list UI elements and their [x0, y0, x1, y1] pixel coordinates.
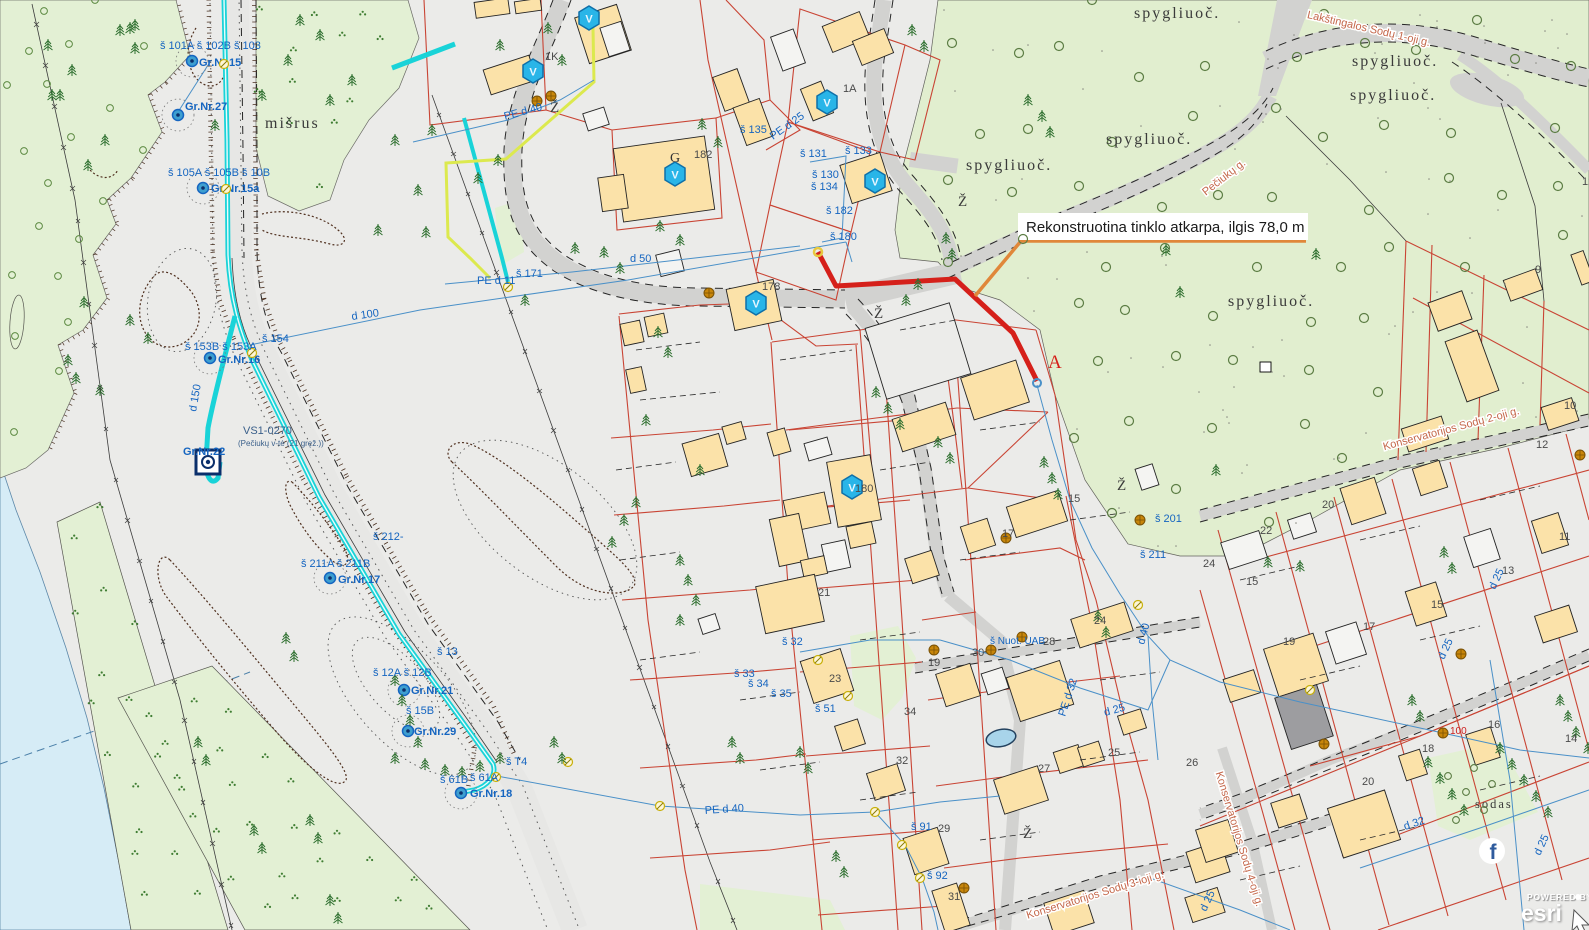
svg-text:š 61B: š 61B — [440, 774, 468, 786]
svg-text:V: V — [529, 67, 537, 79]
svg-text:15: 15 — [1068, 493, 1080, 505]
svg-text:12: 12 — [1536, 439, 1548, 451]
svg-text:178: 178 — [762, 281, 780, 293]
svg-text:15: 15 — [1246, 576, 1258, 588]
svg-text:24: 24 — [1203, 558, 1215, 570]
svg-text:27: 27 — [1038, 763, 1050, 775]
svg-text:(Pečiukų v-tė (21 gręž.)): (Pečiukų v-tė (21 gręž.)) — [238, 439, 324, 448]
svg-text:š 103: š 103 — [234, 40, 261, 52]
svg-text:š 91: š 91 — [911, 821, 932, 833]
svg-text:š 105A š 105B š 10B: š 105A š 105B š 10B — [168, 167, 270, 179]
svg-text:22: 22 — [1260, 525, 1272, 537]
svg-text:12: 12 — [1582, 176, 1589, 188]
svg-text:Rekonstruotina tinklo atkarpa,: Rekonstruotina tinklo atkarpa, ilgis 78,… — [1026, 219, 1304, 236]
svg-text:š 130: š 130 — [812, 169, 839, 181]
svg-text:Gr.Nr.18: Gr.Nr.18 — [470, 788, 512, 800]
svg-text:VS1-0270: VS1-0270 — [243, 425, 292, 437]
svg-text:32: 32 — [896, 755, 908, 767]
svg-text:š 51: š 51 — [815, 703, 836, 715]
svg-text:Gr.Nr.15a: Gr.Nr.15a — [211, 183, 260, 195]
svg-text:d 50: d 50 — [630, 253, 651, 265]
svg-text:š 153B š 153A: š 153B š 153A — [185, 341, 257, 353]
svg-text:Ž: Ž — [550, 99, 561, 116]
svg-text:25: 25 — [1108, 747, 1120, 759]
svg-text:Gr.Nr.29: Gr.Nr.29 — [414, 726, 456, 738]
svg-text:š 201: š 201 — [1155, 513, 1182, 525]
svg-text:š 61A: š 61A — [470, 772, 499, 784]
svg-text:20: 20 — [1362, 776, 1374, 788]
svg-text:17: 17 — [1363, 621, 1375, 633]
svg-text:š 32: š 32 — [782, 636, 803, 648]
svg-text:13: 13 — [1502, 565, 1514, 577]
svg-text:š 211: š 211 — [1140, 549, 1166, 561]
svg-text:31: 31 — [948, 891, 960, 903]
svg-text:V: V — [752, 299, 760, 311]
svg-text:Ž: Ž — [958, 193, 969, 210]
svg-text:V: V — [871, 177, 879, 189]
svg-text:19: 19 — [1283, 636, 1295, 648]
svg-text:Ž: Ž — [874, 305, 885, 322]
svg-text:24: 24 — [1094, 615, 1106, 627]
svg-text:š 12A š 12B: š 12A š 12B — [373, 667, 432, 679]
svg-text:Ž: Ž — [1117, 477, 1128, 494]
svg-text:spygliuoč.: spygliuoč. — [1134, 5, 1220, 22]
svg-text:V: V — [671, 170, 679, 182]
svg-text:15: 15 — [1431, 599, 1443, 611]
svg-text:34: 34 — [904, 706, 916, 718]
svg-text:š 133: š 133 — [845, 145, 872, 157]
svg-text:š 101A š 102B: š 101A š 102B — [160, 40, 231, 52]
svg-text:esri: esri — [1521, 900, 1562, 926]
svg-text:14: 14 — [1565, 733, 1577, 745]
svg-text:28: 28 — [1043, 636, 1055, 648]
svg-text:Gr.Nr.22: Gr.Nr.22 — [183, 446, 225, 458]
svg-text:18: 18 — [1422, 743, 1434, 755]
svg-text:16: 16 — [1488, 719, 1500, 731]
svg-text:10: 10 — [1564, 400, 1576, 412]
svg-text:Gr.Nr.17: Gr.Nr.17 — [338, 574, 380, 586]
svg-text:17: 17 — [1002, 528, 1014, 540]
svg-text:23: 23 — [829, 673, 841, 685]
svg-text:š 15B: š 15B — [406, 705, 434, 717]
svg-text:180: 180 — [855, 483, 873, 495]
svg-text:1A: 1A — [843, 83, 857, 95]
svg-text:20: 20 — [1322, 499, 1334, 511]
svg-text:š Nuot. UAB: š Nuot. UAB — [990, 636, 1045, 647]
svg-text:spygliuoč.: spygliuoč. — [1352, 53, 1438, 70]
svg-text:š 131: š 131 — [800, 148, 827, 160]
svg-text:26: 26 — [1186, 757, 1198, 769]
svg-text:š 135: š 135 — [740, 124, 767, 136]
svg-text:š T4: š T4 — [506, 756, 527, 768]
svg-text:29: 29 — [938, 823, 950, 835]
svg-text:š 13: š 13 — [437, 646, 458, 658]
svg-text:21: 21 — [818, 587, 830, 599]
svg-text:1K: 1K — [545, 51, 559, 63]
svg-text:G: G — [670, 151, 680, 166]
svg-text:š 134: š 134 — [811, 181, 838, 193]
svg-text:š 34: š 34 — [748, 678, 769, 690]
svg-text:100: 100 — [1450, 726, 1467, 737]
svg-text:9: 9 — [1535, 264, 1541, 276]
svg-text:Ž: Ž — [1023, 825, 1034, 842]
svg-text:š 211A š 211B: š 211A š 211B — [301, 558, 370, 570]
svg-text:A: A — [1048, 352, 1062, 373]
svg-text:š 182: š 182 — [826, 205, 853, 217]
svg-text:š 171: š 171 — [516, 268, 543, 280]
svg-text:š 154: š 154 — [262, 333, 289, 345]
svg-text:V: V — [585, 14, 593, 26]
svg-text:Gr.Nr.27: Gr.Nr.27 — [185, 101, 227, 113]
svg-text:30: 30 — [972, 647, 984, 659]
svg-text:11: 11 — [1559, 531, 1570, 543]
svg-text:spygliuoč.: spygliuoč. — [1228, 293, 1314, 310]
svg-text:V: V — [823, 98, 831, 110]
svg-text:PE d 11: PE d 11 — [477, 275, 515, 287]
svg-text:spygliuoč.: spygliuoč. — [1106, 131, 1192, 148]
svg-text:š 35: š 35 — [771, 688, 792, 700]
svg-text:spygliuoč.: spygliuoč. — [1350, 87, 1436, 104]
svg-text:spygliuoč.: spygliuoč. — [966, 157, 1052, 174]
svg-text:Gr.Nr.21: Gr.Nr.21 — [411, 685, 453, 697]
svg-text:182: 182 — [694, 149, 712, 161]
svg-text:š 212-: š 212- — [373, 531, 404, 543]
svg-text:š 92: š 92 — [927, 870, 948, 882]
svg-text:19: 19 — [928, 657, 940, 669]
svg-text:f: f — [1490, 841, 1498, 864]
svg-text:š 180: š 180 — [830, 231, 857, 243]
svg-text:mišrus: mišrus — [265, 115, 320, 132]
